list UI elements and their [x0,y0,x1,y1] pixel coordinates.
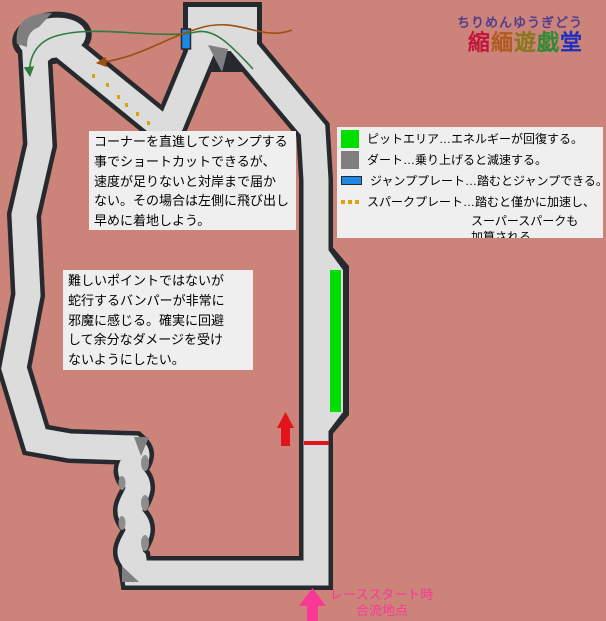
site-logo: ちりめんゆうぎどう 縮緬遊戯堂 [457,12,583,54]
legend-row-spark-plate: スパークプレート…踏むと僅かに加速し、 [337,191,603,212]
note-line: 事でショートカットできるが、 [94,152,291,172]
spark-plate-swatch-icon [341,200,359,204]
note-line: 早めに着地しよう。 [94,211,291,231]
jump-plate-swatch-icon [341,176,362,185]
legend-label: ジャンププレート…踏むとジャンプできる。 [370,172,603,189]
dirt-swatch-icon [341,151,359,169]
pit-area-swatch-icon [341,130,359,148]
note-line: して余分なダメージを受け [68,330,248,350]
legend-row-pit-area: ピットエリア…エネルギーが回復する。 [337,128,603,149]
dirt-crescent [119,476,126,490]
dirt-crescent [119,516,126,530]
legend-row-dirt: ダート…乗り上げると減速する。 [337,149,603,170]
logo-char: 緬 [491,30,514,55]
legend-row-jump-plate: ジャンププレート…踏むとジャンプできる。 [337,170,603,191]
legend-continuation-line: スーパースパークも [337,212,603,228]
logo-char: 遊 [514,30,537,55]
site-logo-furigana: ちりめんゆうぎどう [457,12,583,31]
note-line: 蛇行するバンパーが非常に [68,291,248,311]
legend-label: ピットエリア…エネルギーが回復する。 [367,130,583,147]
start-label-line2: 合流地点 [330,603,434,619]
site-logo-title: 縮緬遊戯堂 [457,31,583,54]
start-label-line1: レーススタート時 [330,587,434,603]
legend-label: スパークプレート…踏むと僅かに加速し、 [367,193,595,210]
note-bumper-warning: 難しいポイントではないが 蛇行するバンパーが非常に 邪魔に感じる。確実に回避 し… [63,270,253,370]
logo-char: 堂 [560,30,583,55]
note-line: 難しいポイントではないが [68,271,248,291]
logo-char: 戯 [537,30,560,55]
legend-continuation-line: 加算される。 [337,228,603,238]
legend: ピットエリア…エネルギーが回復する。 ダート…乗り上げると減速する。 ジャンププ… [337,127,603,238]
dirt-crescent [141,495,149,511]
legend-label: ダート…乗り上げると減速する。 [367,151,547,168]
note-line: ないようにしたい。 [68,350,248,370]
dirt-crescent [141,455,149,471]
note-line: コーナーを直進してジャンプする [94,132,291,152]
start-finish-line [304,441,329,445]
logo-char: 縮 [468,30,491,55]
dirt-crescent [141,535,149,551]
note-shortcut-tip: コーナーを直進してジャンプする 事でショートカットできるが、 速度が足りないと対… [89,131,296,230]
pit-area-bar [330,270,341,412]
note-line: ない。その場合は左側に飛び出し [94,191,291,211]
note-line: 邪魔に感じる。確実に回避 [68,311,248,331]
race-start-merge-label: レーススタート時 合流地点 [330,587,434,618]
note-line: 速度が足りないと対岸まで届か [94,172,291,192]
